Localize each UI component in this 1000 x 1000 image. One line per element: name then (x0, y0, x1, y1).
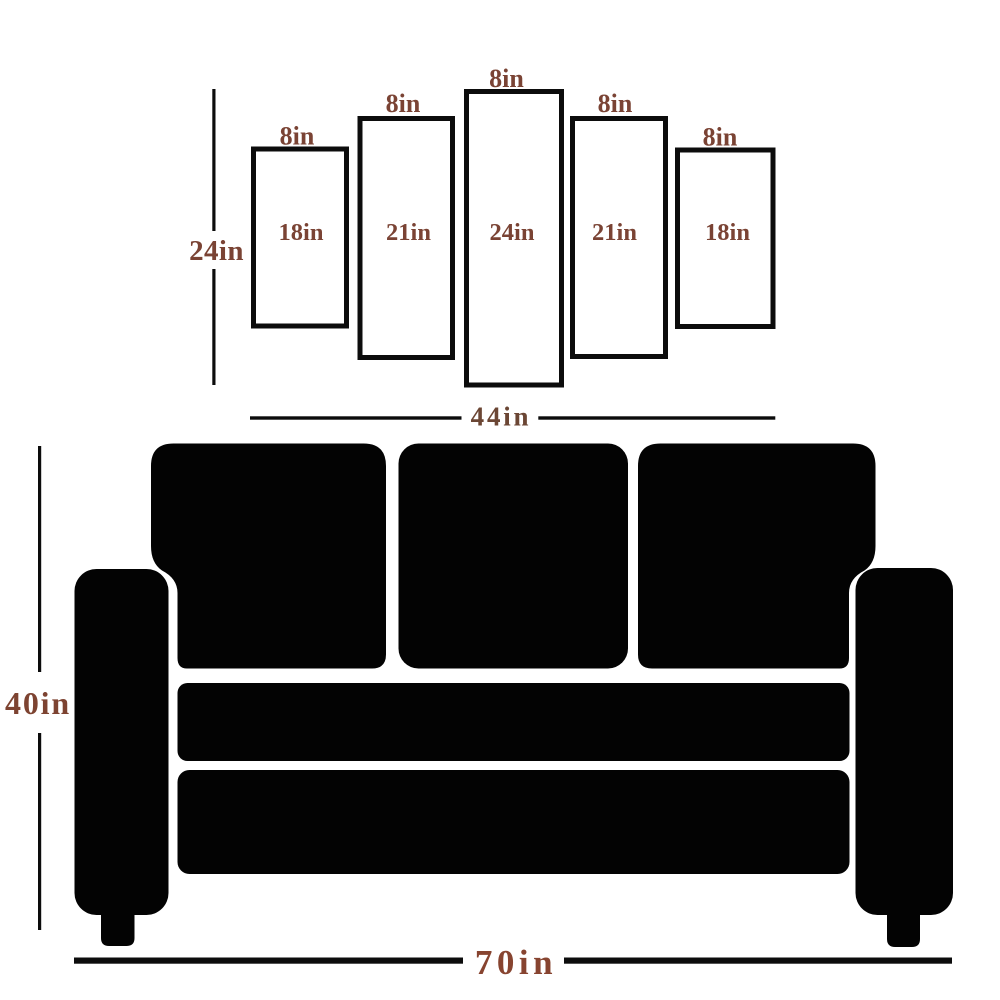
svg-text:8in: 8in (386, 89, 421, 118)
svg-text:8in: 8in (598, 89, 633, 118)
svg-text:24in: 24in (189, 235, 244, 267)
svg-text:70in: 70in (475, 943, 557, 982)
svg-text:44in: 44in (471, 402, 532, 432)
svg-text:18in: 18in (279, 219, 324, 246)
svg-text:8in: 8in (280, 122, 315, 151)
svg-text:18in: 18in (705, 219, 750, 246)
svg-text:40in: 40in (5, 685, 71, 721)
svg-text:24in: 24in (490, 219, 535, 246)
svg-text:8in: 8in (489, 64, 524, 93)
svg-text:21in: 21in (592, 219, 637, 246)
svg-text:8in: 8in (703, 123, 738, 152)
svg-text:21in: 21in (386, 219, 431, 246)
